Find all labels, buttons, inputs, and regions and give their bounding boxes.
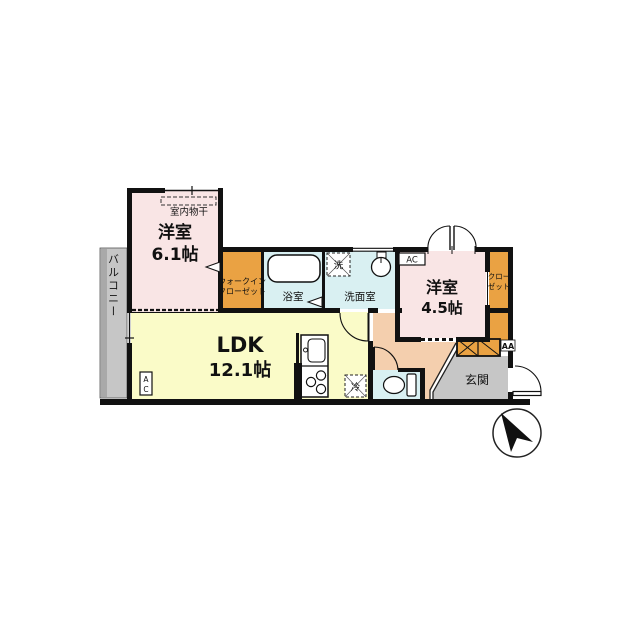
aa-label: AA [502, 342, 515, 351]
bedroom2-name: 洋室 [426, 278, 458, 297]
entrance-door-leaf [513, 392, 541, 396]
indoor-drying-label: 室内物干 [170, 206, 208, 218]
bedroom1-size: 6.1帖 [151, 244, 198, 265]
bedroom2-size: 4.5帖 [421, 299, 463, 317]
ldk-size: 12.1帖 [209, 359, 271, 381]
entrance-label: 玄関 [465, 372, 489, 387]
washer-label: 洗 [334, 260, 344, 272]
ac-label-bedroom2: AC [406, 256, 418, 266]
ac-label-ldk-a: A [143, 375, 149, 384]
bedroom1-name: 洋室 [158, 222, 192, 243]
ac-label-ldk-c: C [143, 385, 148, 394]
closet-label-2: ゼット [488, 281, 511, 291]
balcony-label: バルコニー [107, 254, 120, 319]
floorplan-page: 洋室 6.1帖 室内物干 ウォークイン クローゼット 浴室 洗面室 洗 洋室 4… [0, 0, 640, 640]
wic-label-1: ウォークイン [218, 277, 266, 286]
fridge-label: 冷 [351, 382, 361, 394]
toilet-tank [407, 374, 416, 396]
bathtub [268, 255, 320, 282]
bath-label: 浴室 [283, 290, 304, 303]
closet-label-1: クロー [488, 272, 511, 281]
toilet-bowl [384, 377, 405, 394]
wic-label-2: クローゼット [218, 286, 266, 296]
washroom-label: 洗面室 [344, 290, 376, 303]
kitchen-sink [308, 339, 325, 362]
ldk-name: LDK [216, 333, 264, 357]
closet-lower [489, 312, 509, 340]
floorplan-drawing: 洋室 6.1帖 室内物干 ウォークイン クローゼット 浴室 洗面室 洗 洋室 4… [0, 0, 640, 640]
north-arrow-icon [493, 409, 541, 457]
